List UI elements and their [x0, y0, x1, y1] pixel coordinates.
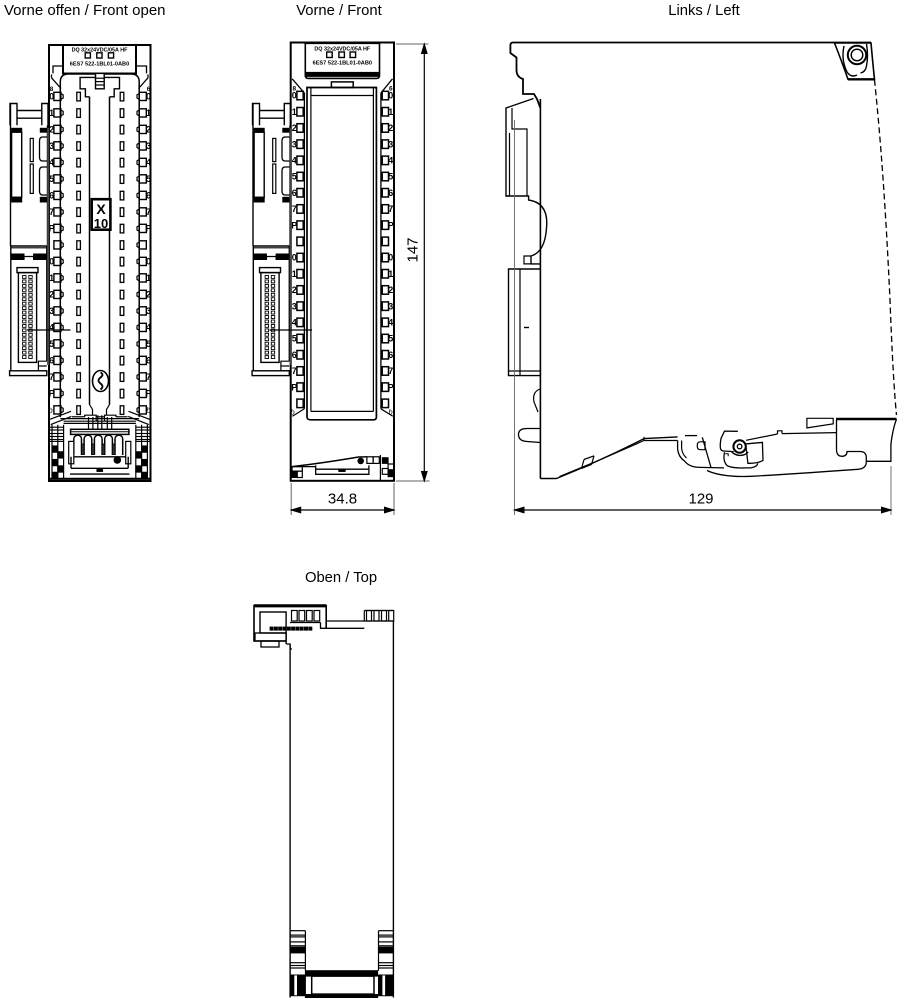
svg-text:7: 7	[292, 204, 297, 214]
svg-text:5: 5	[146, 174, 151, 184]
svg-text:P: P	[145, 224, 151, 234]
svg-text:4: 4	[49, 158, 54, 168]
svg-text:P: P	[291, 382, 297, 392]
svg-text:3: 3	[388, 139, 393, 149]
svg-text:10: 10	[94, 216, 108, 231]
svg-text:129: 129	[688, 491, 713, 508]
svg-text:5: 5	[49, 339, 54, 349]
svg-text:P: P	[49, 389, 55, 399]
svg-text:1: 1	[388, 269, 393, 279]
svg-text:Vorne offen / Front open: Vorne offen / Front open	[4, 2, 166, 19]
svg-text:b: b	[146, 406, 151, 415]
svg-text:4: 4	[292, 156, 297, 166]
svg-text:6: 6	[49, 191, 54, 201]
svg-text:Vorne / Front: Vorne / Front	[296, 3, 382, 19]
svg-text:0: 0	[388, 253, 393, 263]
svg-text:P: P	[145, 389, 151, 399]
svg-text:1: 1	[146, 273, 151, 283]
svg-text:b: b	[389, 408, 393, 417]
svg-text:2: 2	[146, 290, 151, 300]
svg-text:3: 3	[49, 141, 54, 151]
svg-text:2: 2	[388, 285, 393, 295]
svg-text:Links / Left: Links / Left	[668, 3, 740, 19]
svg-text:b: b	[48, 406, 53, 415]
svg-text:5: 5	[146, 339, 151, 349]
svg-text:3: 3	[146, 306, 151, 316]
svg-text:6: 6	[147, 86, 151, 93]
svg-text:3: 3	[292, 301, 297, 311]
svg-text:5: 5	[292, 172, 297, 182]
svg-text:2: 2	[292, 123, 297, 133]
svg-text:2: 2	[146, 125, 151, 135]
svg-text:147: 147	[405, 237, 422, 262]
svg-text:7: 7	[388, 366, 393, 376]
svg-text:6ES7 522-1BL01-0AB0: 6ES7 522-1BL01-0AB0	[313, 61, 372, 67]
svg-text:5: 5	[388, 172, 393, 182]
svg-text:1: 1	[146, 108, 151, 118]
svg-text:4: 4	[49, 323, 54, 333]
svg-text:0: 0	[292, 253, 297, 263]
svg-text:4: 4	[388, 156, 393, 166]
svg-text:1: 1	[388, 107, 393, 117]
svg-text:6ES7 522-1BL01-0AB0: 6ES7 522-1BL01-0AB0	[70, 62, 129, 68]
svg-text:6: 6	[49, 356, 54, 366]
svg-text:7: 7	[292, 366, 297, 376]
svg-text:5: 5	[388, 334, 393, 344]
svg-text:1: 1	[292, 107, 297, 117]
svg-text:4: 4	[388, 318, 393, 328]
svg-text:4: 4	[146, 158, 151, 168]
svg-text:6: 6	[146, 356, 151, 366]
svg-text:7: 7	[388, 204, 393, 214]
svg-text:1: 1	[49, 273, 54, 283]
svg-text:5: 5	[49, 174, 54, 184]
svg-text:P: P	[291, 220, 297, 230]
svg-text:6: 6	[388, 188, 393, 198]
svg-text:3: 3	[146, 141, 151, 151]
svg-text:1: 1	[292, 269, 297, 279]
svg-text:P: P	[388, 382, 394, 392]
svg-text:7: 7	[146, 207, 151, 217]
svg-text:7: 7	[146, 372, 151, 382]
svg-text:7: 7	[49, 372, 54, 382]
svg-text:0: 0	[146, 257, 151, 267]
svg-text:8: 8	[292, 85, 296, 92]
svg-text:3: 3	[292, 139, 297, 149]
svg-text:6: 6	[292, 188, 297, 198]
svg-text:2: 2	[292, 285, 297, 295]
svg-text:3: 3	[49, 306, 54, 316]
svg-text:4: 4	[292, 318, 297, 328]
svg-text:X: X	[96, 201, 106, 217]
svg-text:6: 6	[292, 350, 297, 360]
svg-text:0: 0	[49, 257, 54, 267]
svg-text:Oben / Top: Oben / Top	[305, 570, 377, 586]
svg-text:2: 2	[388, 123, 393, 133]
svg-text:8: 8	[50, 86, 54, 93]
svg-text:34.8: 34.8	[328, 491, 357, 508]
svg-text:6: 6	[389, 85, 393, 92]
svg-text:P: P	[388, 220, 394, 230]
svg-text:1: 1	[49, 108, 54, 118]
svg-text:0: 0	[49, 92, 54, 102]
svg-text:2: 2	[49, 125, 54, 135]
svg-text:6: 6	[388, 350, 393, 360]
svg-text:b: b	[291, 408, 295, 417]
svg-text:P: P	[49, 224, 55, 234]
svg-text:7: 7	[49, 207, 54, 217]
svg-text:3: 3	[388, 301, 393, 311]
svg-text:6: 6	[146, 191, 151, 201]
svg-text:4: 4	[146, 323, 151, 333]
svg-text:5: 5	[292, 334, 297, 344]
svg-text:2: 2	[49, 290, 54, 300]
svg-text:0: 0	[146, 92, 151, 102]
